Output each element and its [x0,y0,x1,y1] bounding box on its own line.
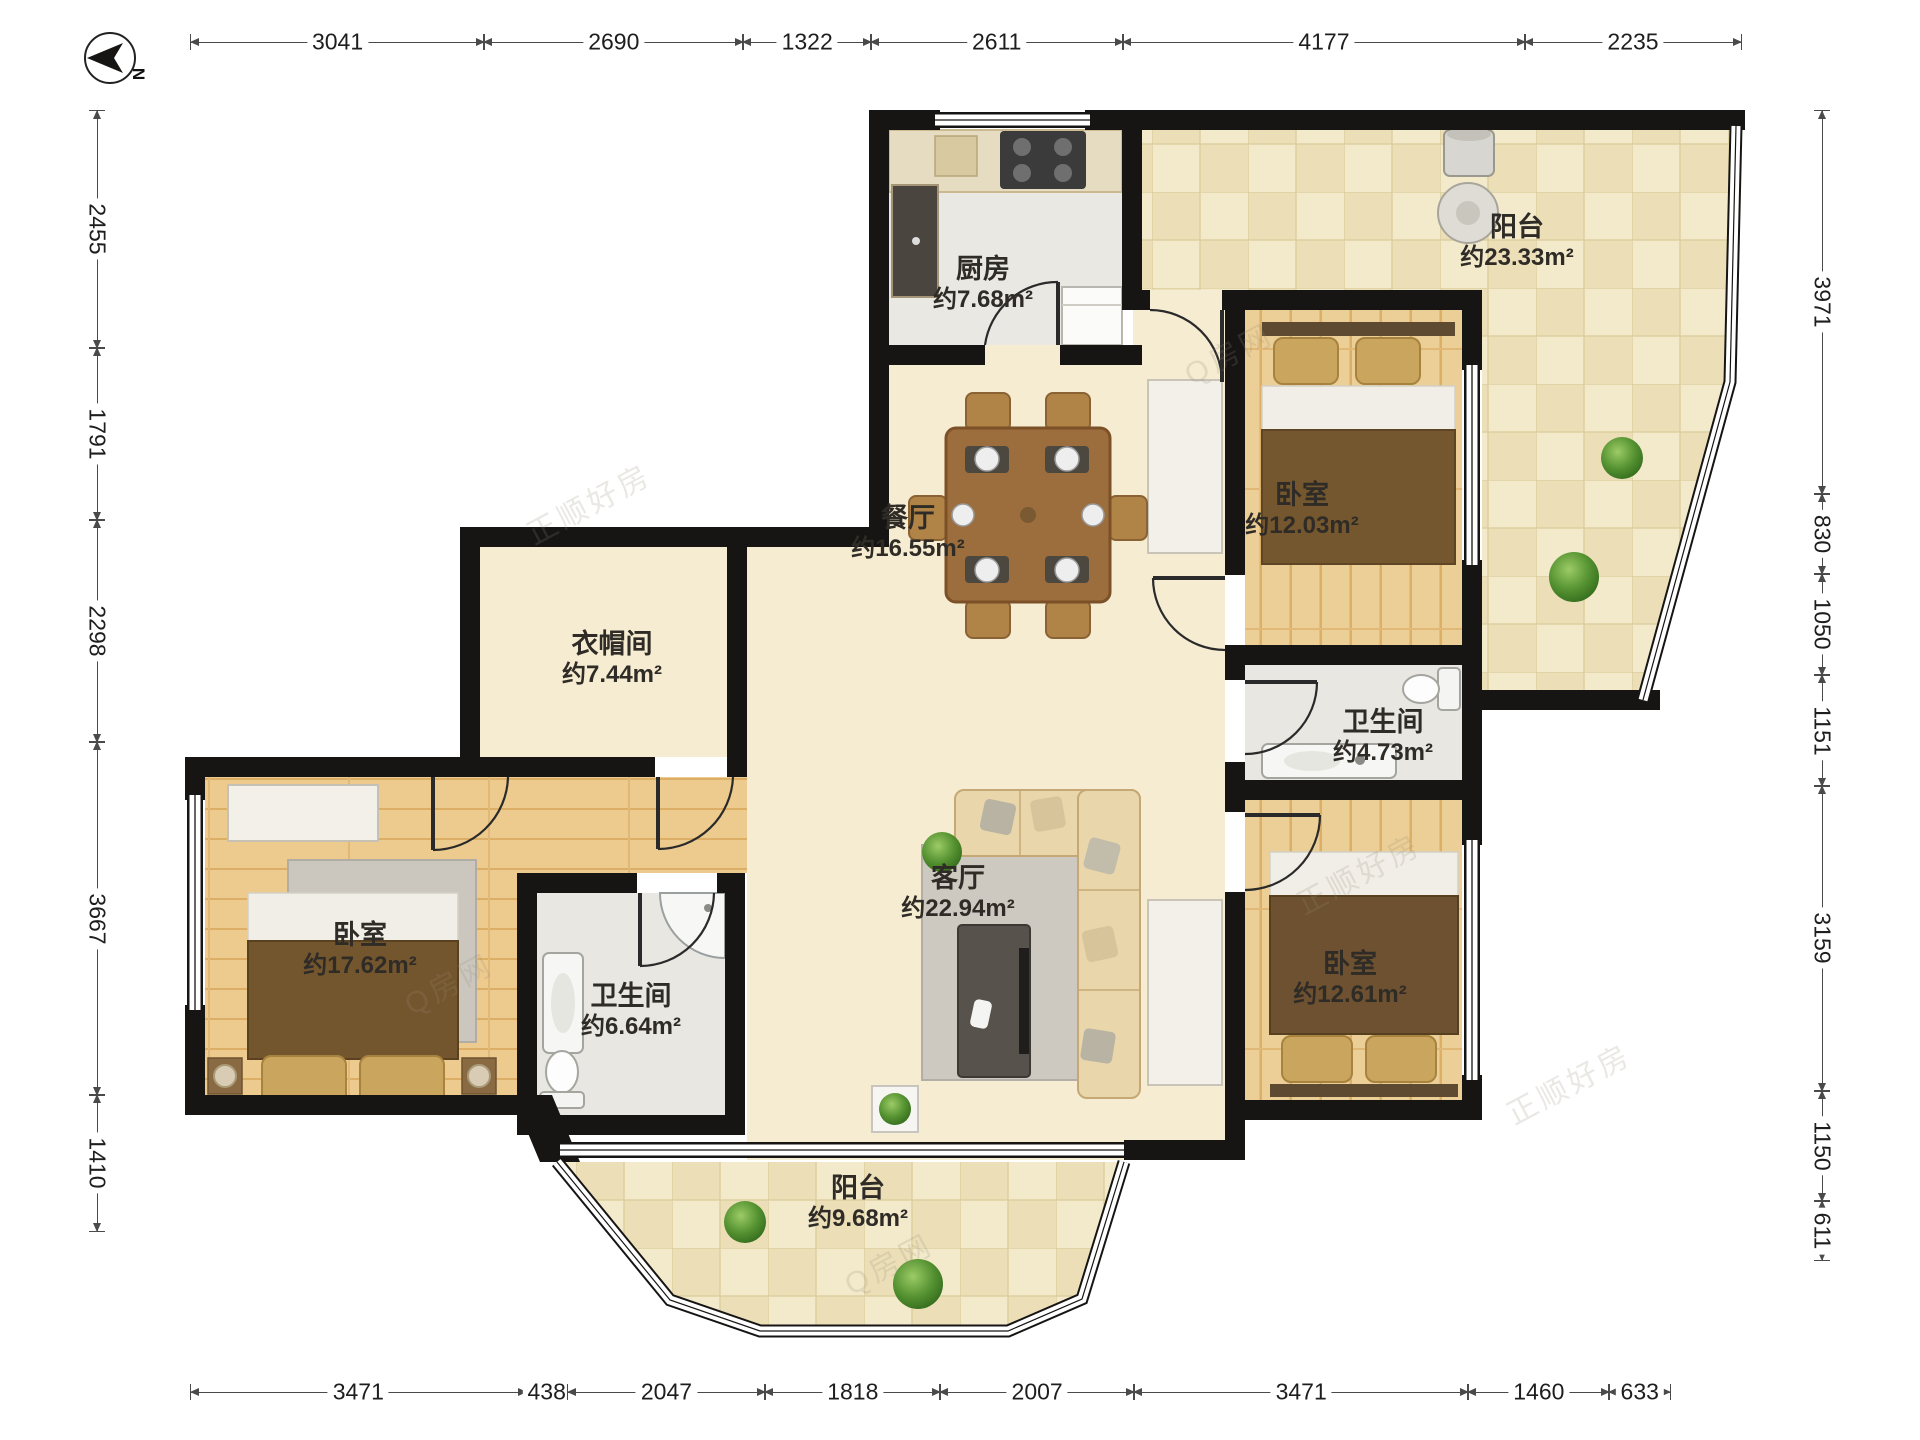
dim-value: 3159 [1809,908,1836,969]
room-label-cloakroom: 衣帽间约7.44m² [562,629,662,689]
dimension-segment-right: 830 [1814,493,1830,575]
dimension-segment-left: 1410 [89,1094,105,1232]
dim-arrowhead [93,741,101,750]
dim-arrowhead [93,1094,101,1103]
dim-value: 3971 [1809,272,1836,333]
room-label-bedroom-se: 卧室约12.61m² [1293,949,1406,1009]
dim-arrowhead [93,519,101,528]
plant [724,1201,766,1243]
dim-arrowhead [1818,785,1826,794]
dimension-segment-right: 3971 [1814,110,1830,495]
dim-value: 2235 [1602,29,1663,56]
room-label-kitchen: 厨房约7.68m² [933,254,1033,314]
room-name: 餐厅 [851,503,964,535]
dimension-segment-bottom: 3471 [1133,1384,1470,1400]
toilet-east [1403,675,1439,703]
dim-arrowhead [764,1388,773,1396]
room-name: 阳台 [808,1173,908,1205]
dim-arrowhead [1818,1090,1826,1099]
room-area: 约16.55m² [851,535,964,563]
room-name: 卫生间 [581,981,681,1013]
compass: N [76,24,156,109]
room-name: 阳台 [1460,212,1573,244]
compass-n-label: N [128,68,148,80]
dim-arrowhead [1467,1388,1476,1396]
dimension-segment-right: 1150 [1814,1090,1830,1203]
dim-value: 2298 [84,600,111,661]
dimension-segment-top: 1322 [742,34,871,50]
dim-value: 3667 [84,888,111,949]
dimension-segment-right: 1151 [1814,674,1830,787]
plant [1601,437,1643,479]
dimension-segment-top: 3041 [190,34,485,50]
room-name: 卧室 [1293,949,1406,981]
dim-value: 1151 [1809,701,1836,760]
room-name: 卧室 [303,920,416,952]
dim-arrowhead [1818,493,1826,502]
dim-arrowhead [567,1388,576,1396]
dimension-segment-left: 2455 [89,110,105,349]
room-label-living: 客厅约22.94m² [901,863,1014,923]
dim-value: 1322 [777,29,838,56]
dim-arrowhead [93,1223,101,1232]
room-area: 约4.73m² [1333,739,1433,767]
dimension-segment-bottom: 438 [525,1384,569,1400]
dim-value: 611 [1809,1207,1836,1254]
dim-value: 3041 [307,29,368,56]
dim-arrowhead [93,110,101,119]
room-label-bathroom-east: 卫生间约4.73m² [1333,707,1433,767]
lamp [214,1065,236,1087]
dimension-segment-top: 4177 [1122,34,1527,50]
dim-value: 2455 [84,199,111,260]
room-area: 约22.94m² [901,895,1014,923]
cutting-board [935,136,977,176]
dim-value: 2690 [583,29,644,56]
dimension-segment-bottom: 2047 [567,1384,766,1400]
room-area: 约12.03m² [1245,512,1358,540]
dimension-segment-bottom: 1818 [764,1384,941,1400]
room-name: 客厅 [901,863,1014,895]
room-label-balcony-south: 阳台约9.68m² [808,1173,908,1233]
toilet-west [546,1051,578,1093]
dim-arrowhead [1733,38,1742,46]
room-name: 卫生间 [1333,707,1433,739]
tv [1019,948,1029,1054]
dimension-segment-right: 1050 [1814,573,1830,676]
dimension-segment-top: 2611 [870,34,1124,50]
dim-value: 4177 [1293,29,1354,56]
dimension-segment-top: 2690 [483,34,744,50]
dim-arrowhead [1133,1388,1142,1396]
plant [1549,552,1599,602]
dim-arrowhead [1818,573,1826,582]
dimension-segment-right: 611 [1814,1200,1830,1261]
room-label-balcony-north: 阳台约23.33m² [1460,212,1573,272]
dim-value: 2047 [636,1379,697,1406]
tv-wall-cabinet [1148,900,1222,1085]
hall-cabinet [1148,380,1222,553]
room-name: 卧室 [1245,480,1358,512]
dim-value: 830 [1809,510,1836,558]
room-area: 约6.64m² [581,1013,681,1041]
room-area: 约9.68m² [808,1205,908,1233]
dim-arrowhead [1122,38,1131,46]
dim-value: 3471 [1271,1379,1332,1406]
room-label-bedroom-west: 卧室约17.62m² [303,920,416,980]
dresser [228,785,378,841]
room-area: 约12.61m² [1293,981,1406,1009]
dim-value: 1410 [84,1133,111,1194]
dimension-segment-left: 3667 [89,741,105,1096]
dim-arrowhead [190,38,199,46]
dimension-segment-right: 3159 [1814,785,1830,1092]
dim-arrowhead [870,38,879,46]
floorplan-canvas: 厨房约7.68m² 阳台约23.33m² 卧室约12.03m² 餐厅约16.55… [0,0,1920,1440]
room-name: 厨房 [933,254,1033,286]
room-area: 约23.33m² [1460,244,1573,272]
dim-value: 2007 [1007,1379,1068,1406]
dim-value: 2611 [967,29,1026,56]
dim-value: 1791 [84,403,111,464]
dim-arrowhead [483,38,492,46]
dimension-segment-left: 1791 [89,347,105,522]
dimension-segment-top: 2235 [1524,34,1741,50]
dim-arrowhead [1818,110,1826,119]
dim-arrowhead [1524,38,1533,46]
dimension-segment-bottom: 3471 [190,1384,527,1400]
floor-plan-svg [0,0,1920,1440]
room-label-bedroom-ne: 卧室约12.03m² [1245,480,1358,540]
dim-value: 1150 [1809,1116,1836,1175]
room-area: 约7.44m² [562,661,662,689]
room-label-bathroom-west: 卫生间约6.64m² [581,981,681,1041]
room-area: 约7.68m² [933,286,1033,314]
dim-value: 438 [523,1379,571,1406]
dim-value: 1050 [1809,594,1836,655]
dim-arrowhead [939,1388,948,1396]
fridge [1062,287,1122,345]
dimension-segment-bottom: 2007 [939,1384,1134,1400]
dim-value: 633 [1616,1379,1664,1406]
room-area: 约17.62m² [303,952,416,980]
dim-value: 1460 [1508,1379,1569,1406]
dimension-segment-left: 2298 [89,519,105,743]
stove [1000,131,1086,189]
room-label-dining: 餐厅约16.55m² [851,503,964,563]
dim-arrowhead [1818,674,1826,683]
dim-arrowhead [190,1388,199,1396]
dim-arrowhead [93,347,101,356]
lamp [468,1065,490,1087]
room-name: 衣帽间 [562,629,662,661]
dim-value: 3471 [328,1379,389,1406]
north-arrow-icon [76,24,156,104]
dimension-segment-bottom: 633 [1608,1384,1671,1400]
dim-value: 1818 [822,1379,883,1406]
plant [879,1093,911,1125]
dim-arrowhead [742,38,751,46]
dimension-segment-bottom: 1460 [1467,1384,1610,1400]
